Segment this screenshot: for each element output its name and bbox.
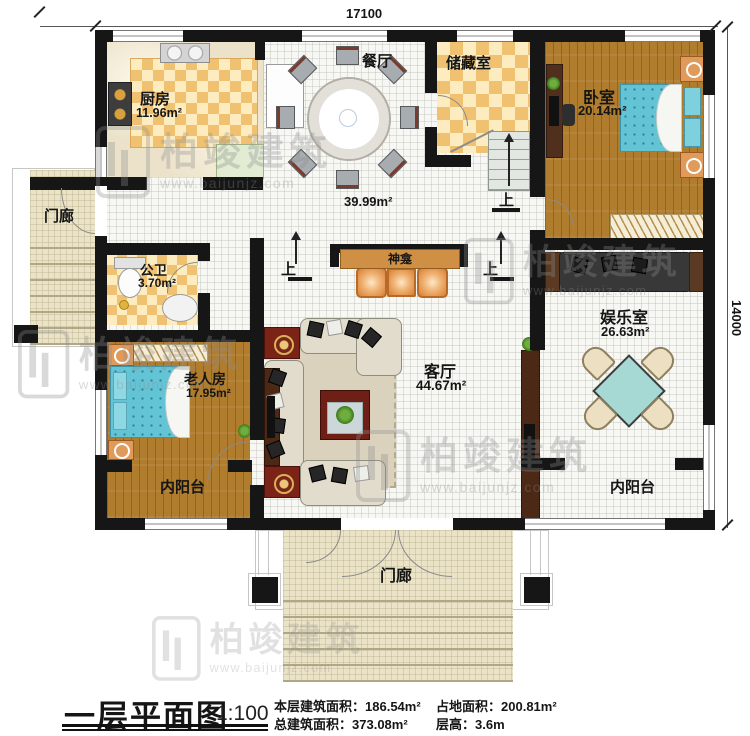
room-label-dining: 餐厅 (362, 50, 392, 71)
wall-exterior-top (95, 30, 715, 42)
door-opening (95, 186, 107, 236)
sofa-chaise (356, 318, 402, 376)
bed-pillow (684, 118, 701, 147)
column-line (268, 530, 269, 575)
bathroom-sink (162, 294, 198, 322)
floor-plan: 神龛 (0, 0, 750, 736)
wall-segment (203, 177, 263, 190)
elder-wardrobe (132, 344, 208, 362)
shrine-chair (356, 267, 387, 298)
dimension-line-right (727, 28, 728, 528)
stat-land-area: 占地面积：200.81m² (436, 696, 557, 715)
room-label-porch-left: 门廊 (44, 205, 74, 226)
bed-pillow (684, 87, 701, 116)
dining-chair (400, 106, 419, 129)
column-line (540, 530, 541, 575)
stat-total-area: 总建筑面积：373.08m² (274, 714, 408, 733)
stove (108, 82, 132, 126)
tv-icon (267, 396, 275, 438)
plant-icon (336, 406, 354, 424)
window (145, 518, 227, 530)
door-opening (341, 518, 453, 530)
baijun-logo-icon (152, 616, 201, 681)
step-arrow-head (291, 231, 301, 240)
stair-arrow-head (504, 133, 514, 142)
stat-value: 186.54m² (365, 699, 421, 714)
sofa-pillow (353, 465, 370, 482)
wall-segment (675, 458, 703, 470)
room-label-porch-bottom: 门廊 (380, 562, 412, 586)
wall-segment (250, 238, 264, 440)
stat-label: 总建筑面积： (274, 717, 352, 732)
room-area-dining: 39.99m² (344, 194, 392, 209)
shrine-stool (387, 268, 416, 297)
wall-exterior-left (95, 30, 107, 530)
room-area-entertainment: 26.63m² (601, 324, 649, 339)
bed-pillow (113, 372, 127, 400)
room-area-bathroom: 3.70m² (138, 276, 176, 290)
plant-icon (547, 77, 560, 90)
porch-left-steps (30, 244, 95, 345)
dining-chair (336, 46, 359, 65)
wall-segment (521, 458, 565, 470)
room-area-bedroom: 20.14m² (578, 103, 626, 118)
nightstand (108, 344, 134, 366)
dining-table-center (339, 109, 357, 127)
wall-segment (255, 42, 265, 60)
shrine-table: 神龛 (340, 249, 460, 269)
desk-monitor (549, 96, 559, 126)
column-line (258, 530, 259, 575)
desk-chair (562, 104, 575, 126)
wall-segment (95, 460, 132, 472)
column-line (530, 530, 531, 575)
shrine-chair (417, 267, 448, 298)
dimension-line-top (40, 26, 718, 27)
title-underline (62, 729, 268, 731)
window (457, 30, 513, 42)
stair-arrow (508, 142, 510, 186)
shrine-label: 神龛 (388, 252, 412, 266)
window (95, 147, 107, 177)
porch-pillar (14, 325, 38, 343)
stat-value: 3.6m (475, 717, 505, 732)
plan-scale: 1:100 (216, 702, 269, 726)
window (625, 30, 700, 42)
sofa-pillow (331, 467, 348, 484)
wall-segment (95, 330, 250, 342)
step-arrow-head (496, 231, 506, 240)
porch-pillar (524, 577, 550, 603)
red-stool (264, 466, 300, 498)
wall-segment (530, 42, 545, 197)
window (703, 425, 715, 510)
dining-chair (336, 170, 359, 189)
kitchen-sink (160, 43, 210, 63)
stat-label: 本层建筑面积： (274, 699, 365, 714)
wall-segment (250, 485, 264, 518)
up-label: 上 (281, 258, 296, 279)
stat-floor-area: 本层建筑面积：186.54m² (274, 696, 421, 715)
dimension-tick (33, 6, 45, 18)
up-label: 上 (483, 258, 498, 279)
dish-rack (216, 144, 264, 179)
dining-chair (276, 106, 295, 129)
wall-segment (425, 42, 437, 93)
window (703, 95, 715, 178)
sofa-pillow (326, 319, 343, 336)
room-label-balcony-left: 内阳台 (160, 476, 205, 497)
room-label-storage: 储藏室 (446, 52, 491, 73)
window (113, 30, 183, 42)
shrine-wall-cap (330, 244, 339, 267)
sofa-pillow (631, 257, 648, 274)
porch-bottom-steps (283, 594, 513, 682)
floor-drain (119, 300, 129, 310)
stat-floor-height: 层高：3.6m (436, 714, 505, 733)
wall-segment (533, 238, 715, 250)
porch-pillar (252, 577, 278, 603)
shrine-wall-cap (459, 244, 468, 267)
stat-value: 200.81m² (501, 699, 557, 714)
stat-label: 占地面积： (436, 699, 501, 714)
bed-pillow (113, 402, 127, 430)
up-label: 上 (499, 189, 514, 210)
window (95, 390, 107, 455)
bedroom-bed-blanket (656, 84, 682, 152)
wall-segment (198, 243, 210, 261)
stat-value: 373.08m² (352, 717, 408, 732)
wall-segment (425, 155, 471, 167)
room-area-elder: 17.95m² (186, 386, 231, 400)
sofa-pillow (601, 255, 618, 272)
step-arrow (500, 240, 502, 264)
nightstand (108, 440, 134, 460)
wall-segment (95, 243, 210, 255)
bedroom-wardrobe (610, 214, 706, 240)
stat-label: 层高： (436, 717, 475, 732)
room-area-living: 44.67m² (416, 378, 466, 393)
window (525, 518, 665, 530)
dimension-height: 14000 (729, 300, 744, 336)
window (302, 30, 387, 42)
dimension-width: 17100 (346, 6, 382, 21)
room-area-kitchen: 11.96m² (136, 106, 182, 120)
sofa-pillow (307, 321, 325, 339)
title-underline (62, 724, 268, 727)
room-label-balcony-right: 内阳台 (610, 476, 655, 497)
red-stool (264, 327, 300, 359)
